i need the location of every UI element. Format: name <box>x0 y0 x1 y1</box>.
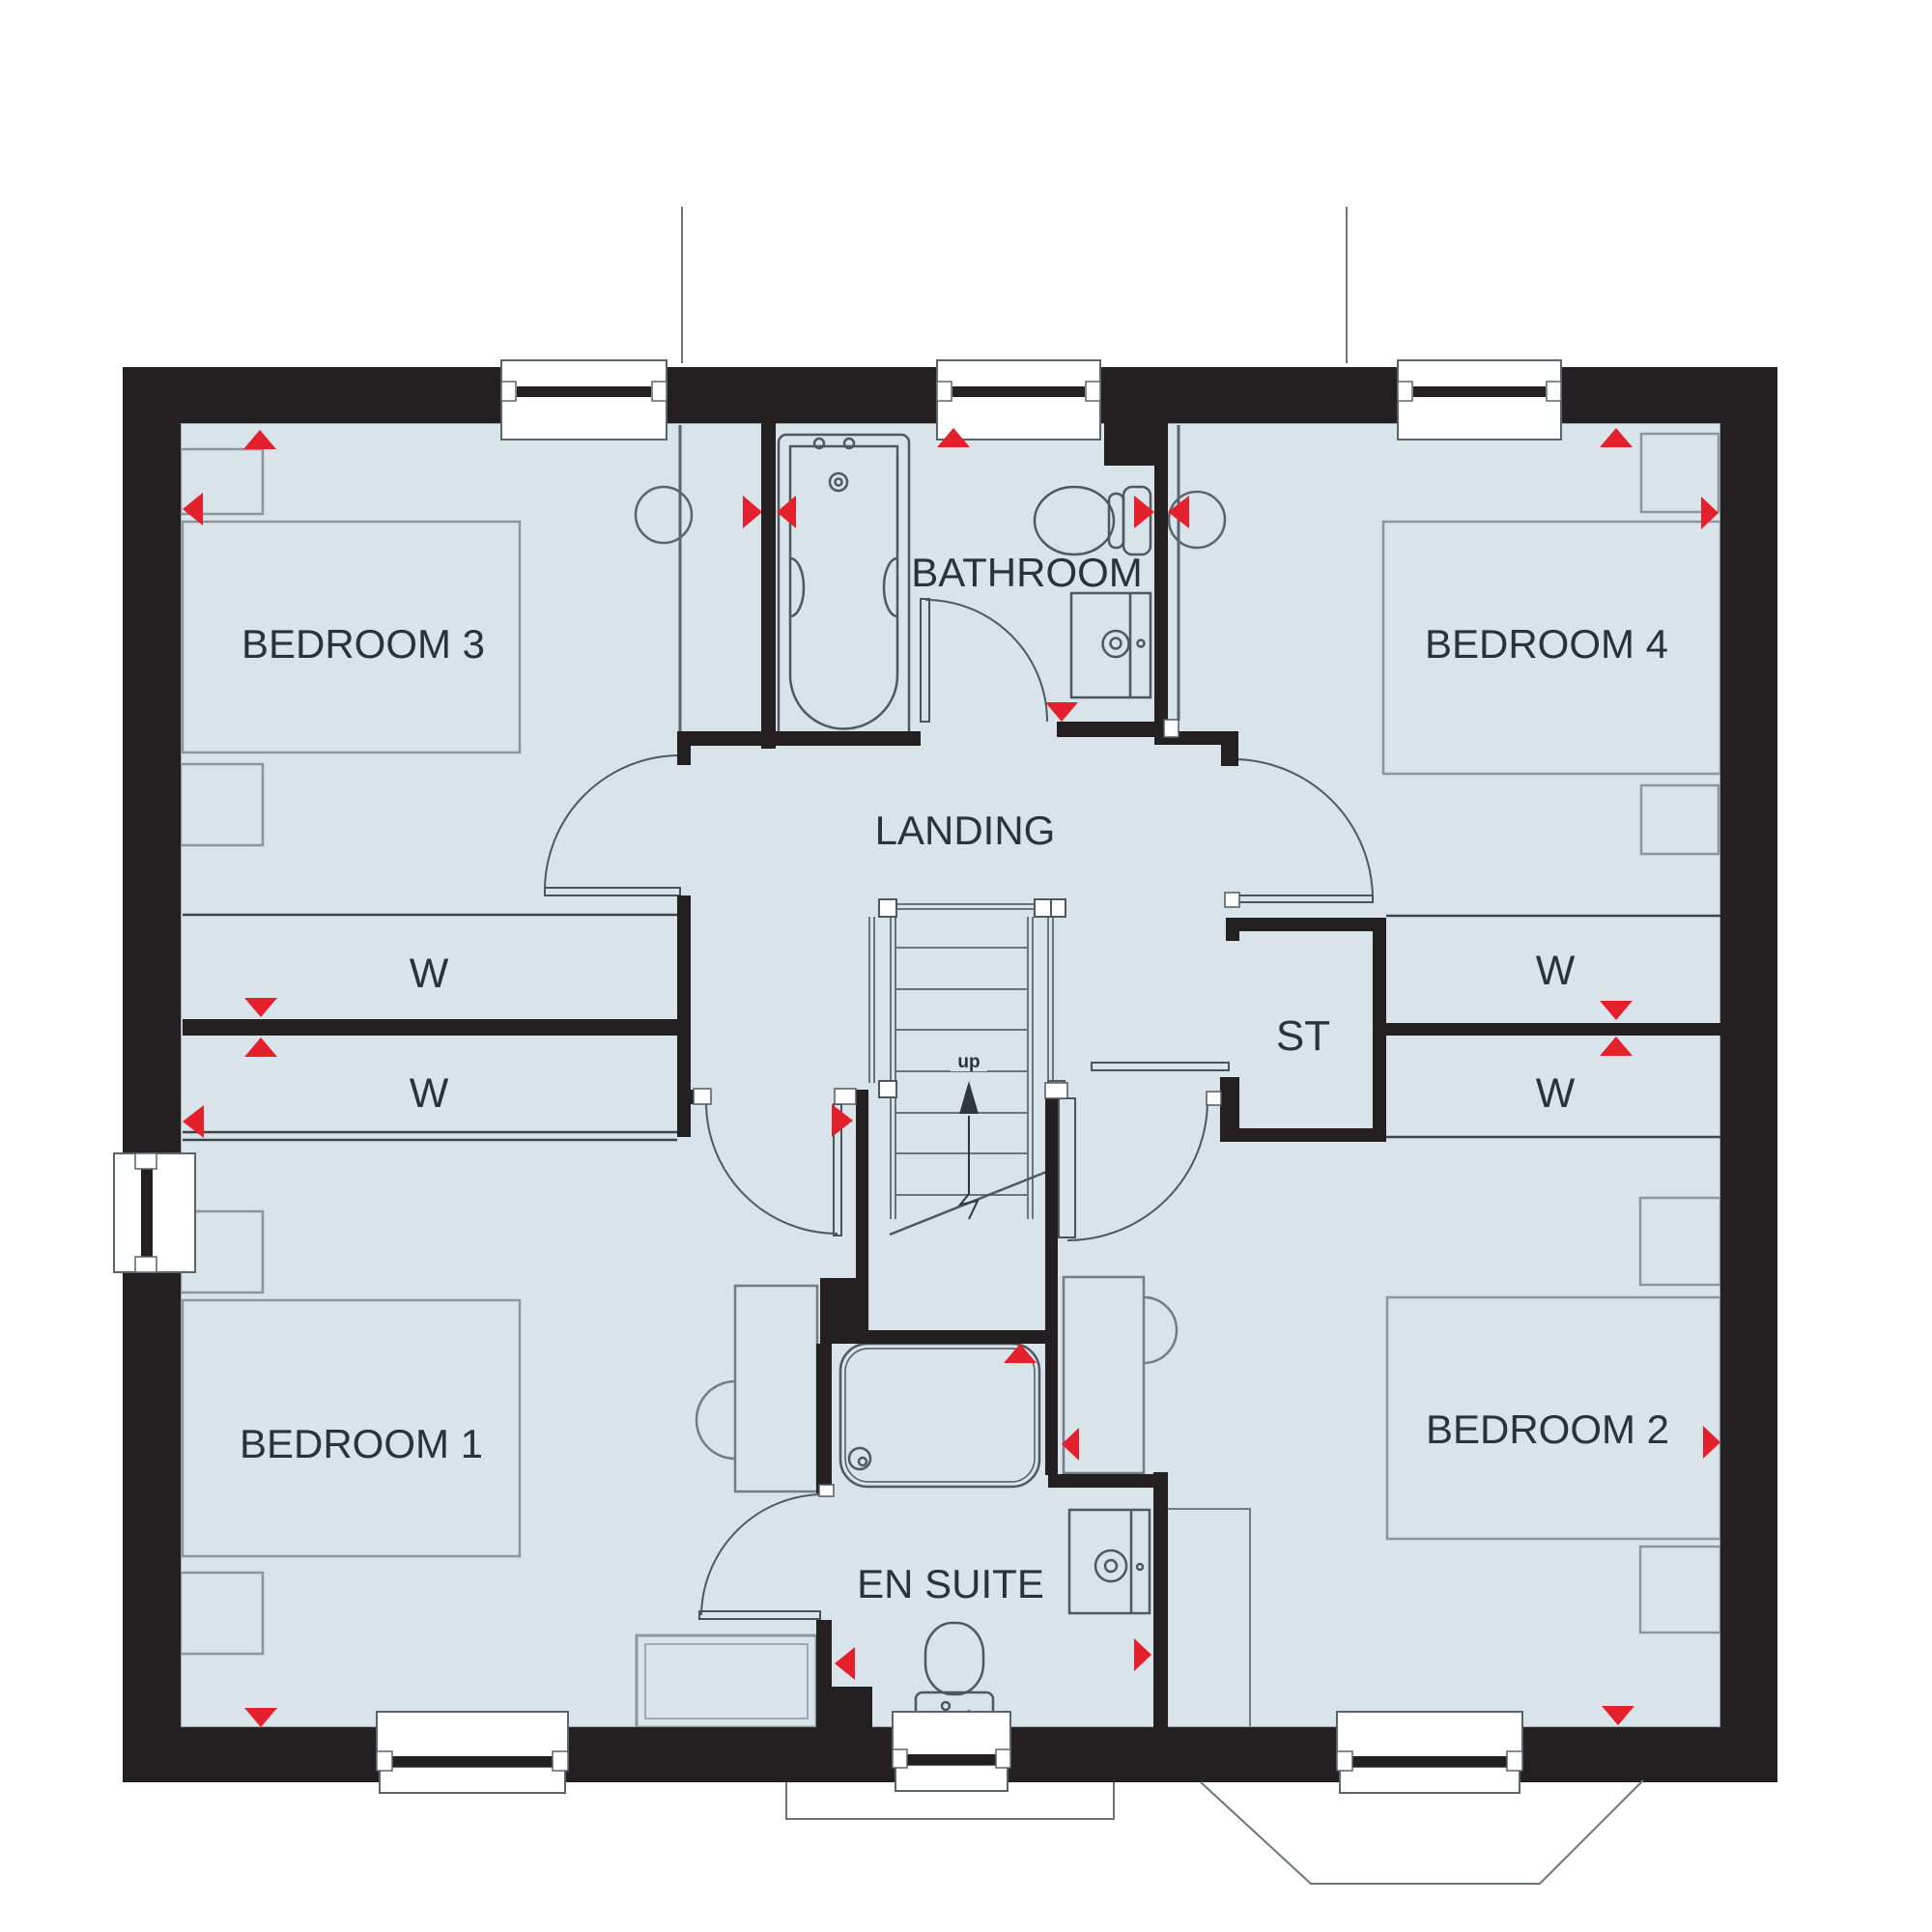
svg-text:W: W <box>1536 1070 1576 1117</box>
svg-text:W: W <box>410 951 449 997</box>
svg-text:W: W <box>410 1070 449 1117</box>
svg-text:BATHROOM: BATHROOM <box>911 550 1143 595</box>
svg-text:LANDING: LANDING <box>875 808 1056 853</box>
svg-text:up: up <box>957 1052 980 1072</box>
svg-text:EN SUITE: EN SUITE <box>857 1561 1044 1606</box>
svg-text:ST: ST <box>1276 1012 1330 1060</box>
svg-text:BEDROOM 3: BEDROOM 3 <box>241 621 485 667</box>
svg-text:W: W <box>1536 948 1576 994</box>
svg-text:BEDROOM 2: BEDROOM 2 <box>1426 1406 1669 1452</box>
svg-text:BEDROOM 1: BEDROOM 1 <box>240 1421 483 1466</box>
svg-text:BEDROOM 4: BEDROOM 4 <box>1425 621 1668 667</box>
